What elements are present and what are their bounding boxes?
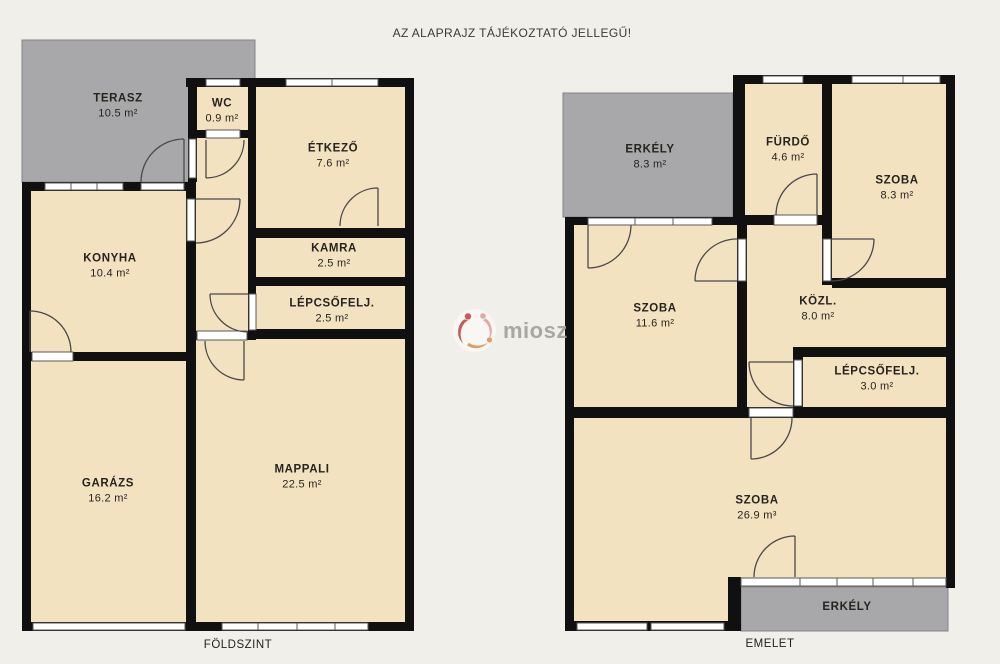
- room-label-terasz: TERASZ 10.5 m²: [93, 90, 143, 121]
- room-label-szoba-small: SZOBA 8.3 m²: [875, 172, 918, 203]
- room-label-szoba-big: SZOBA 26.9 m³: [735, 492, 778, 523]
- room-label-szoba-mid: SZOBA 11.6 m²: [633, 300, 676, 331]
- room-name: KÖZL.: [799, 293, 837, 309]
- room-area: 0.9 m²: [206, 111, 239, 126]
- room-label-erkely-bottom: ERKÉLY: [822, 599, 871, 615]
- disclaimer-title: AZ ALAPRAJZ TÁJÉKOZTATÓ JELLEGŰ!: [393, 26, 632, 40]
- room-label-lepcsofelj-ground: LÉPCSŐFELJ. 2.5 m²: [289, 295, 374, 326]
- room-name: MAPPALI: [274, 461, 329, 477]
- room-area: 16.2 m²: [82, 491, 134, 506]
- room-label-garazs: GARÁZS 16.2 m²: [82, 475, 134, 506]
- upper-floor-plan: [563, 75, 955, 631]
- room-name: ÉTKEZŐ: [308, 140, 358, 156]
- room-area: 26.9 m³: [735, 508, 778, 523]
- room-name: SZOBA: [633, 300, 676, 316]
- room-name: ERKÉLY: [625, 141, 674, 157]
- upper-floor-caption: EMELET: [745, 638, 794, 650]
- room-label-erkely-top: ERKÉLY 8.3 m²: [625, 141, 674, 172]
- room-name: LÉPCSŐFELJ.: [289, 295, 374, 311]
- room-label-kamra: KAMRA 2.5 m²: [311, 240, 357, 271]
- room-label-etkezo: ÉTKEZŐ 7.6 m²: [308, 140, 358, 171]
- logo-emblem-icon: [452, 308, 497, 353]
- room-label-furdo: FÜRDŐ 4.6 m²: [766, 134, 810, 165]
- room-name: KAMRA: [311, 240, 357, 256]
- floorplan-page: AZ ALAPRAJZ TÁJÉKOZTATÓ JELLEGŰ! TERASZ …: [0, 0, 1000, 664]
- room-name: WC: [206, 95, 239, 111]
- room-name: GARÁZS: [82, 475, 134, 491]
- ground-floor-caption: FÖLDSZINT: [204, 639, 272, 651]
- room-area: 2.5 m²: [311, 256, 357, 271]
- room-area: 7.6 m²: [308, 156, 358, 171]
- room-area: 8.0 m²: [799, 309, 837, 324]
- room-area: 11.6 m²: [633, 316, 676, 331]
- room-name: KONYHA: [83, 250, 136, 266]
- room-area: 8.3 m²: [875, 188, 918, 203]
- room-area: 8.3 m²: [625, 157, 674, 172]
- room-area: 10.5 m²: [93, 106, 143, 121]
- room-area: 4.6 m²: [766, 150, 810, 165]
- room-area: 2.5 m²: [289, 311, 374, 326]
- room-name: FÜRDŐ: [766, 134, 810, 150]
- room-name: SZOBA: [735, 492, 778, 508]
- room-name: ERKÉLY: [822, 599, 871, 615]
- room-name: TERASZ: [93, 90, 143, 106]
- room-label-lepcsofelj-upper: LÉPCSŐFELJ. 3.0 m²: [834, 363, 919, 394]
- room-area: 22.5 m²: [274, 477, 329, 492]
- room-label-mappali: MAPPALI 22.5 m²: [274, 461, 329, 492]
- room-name: SZOBA: [875, 172, 918, 188]
- room-label-kozl: KÖZL. 8.0 m²: [799, 293, 837, 324]
- ground-floor-plan: [22, 40, 414, 631]
- room-area: 3.0 m²: [834, 379, 919, 394]
- room-area: 10.4 m²: [83, 266, 136, 281]
- room-label-wc: WC 0.9 m²: [206, 95, 239, 126]
- room-name: LÉPCSŐFELJ.: [834, 363, 919, 379]
- logo-text: miosz: [503, 320, 568, 342]
- watermark-logo: miosz: [452, 308, 568, 353]
- room-label-konyha: KONYHA 10.4 m²: [83, 250, 136, 281]
